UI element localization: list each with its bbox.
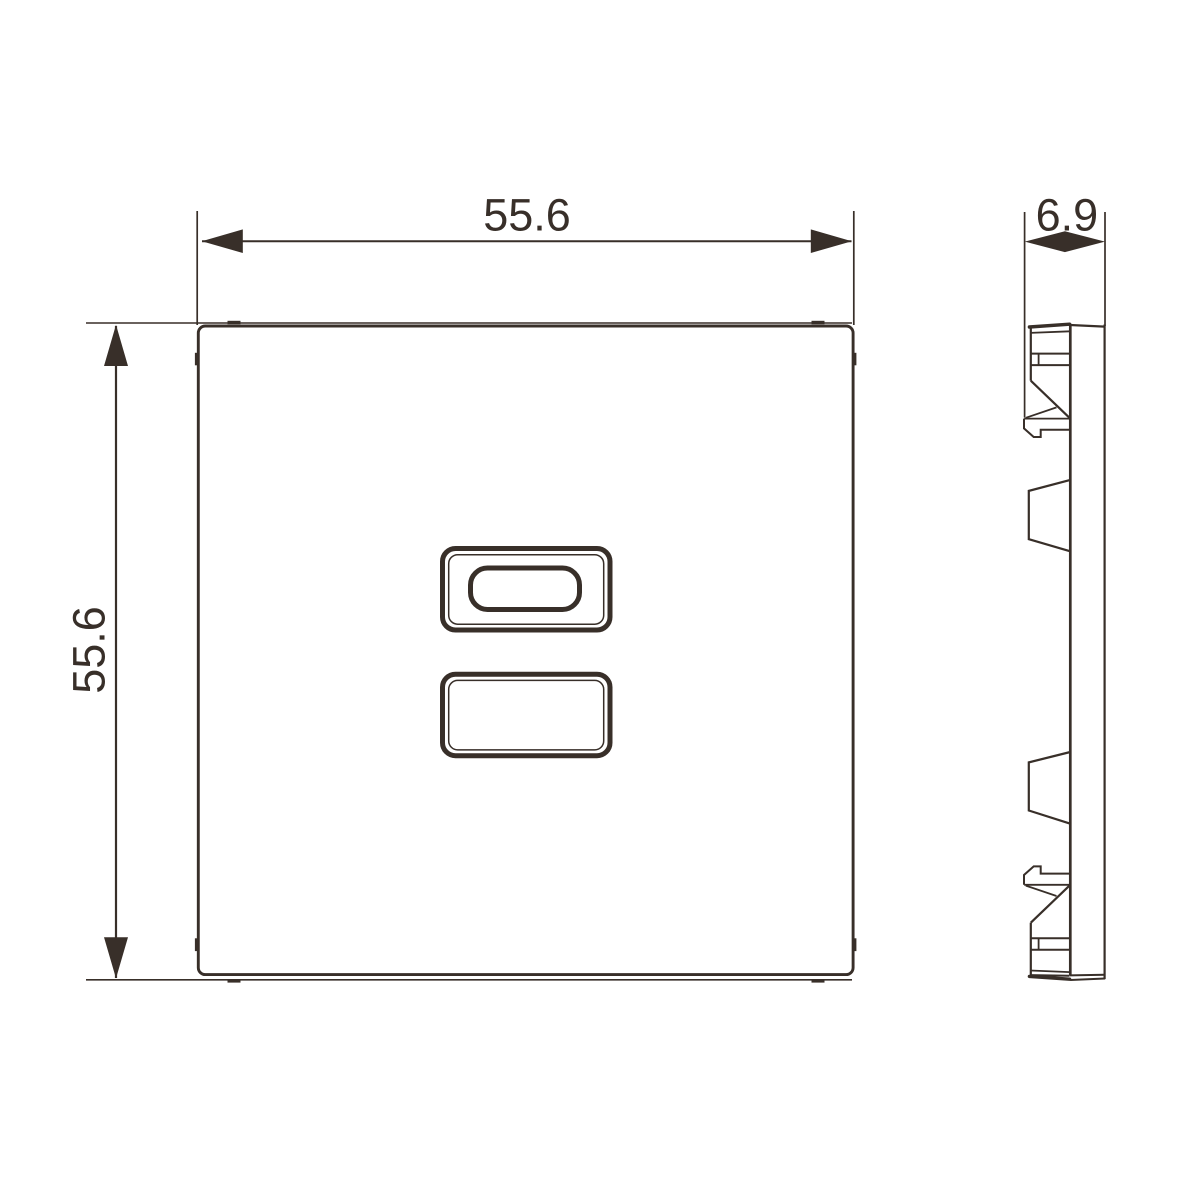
svg-text:6.9: 6.9 [1036, 190, 1099, 241]
svg-text:55.6: 55.6 [483, 190, 571, 241]
svg-text:55.6: 55.6 [64, 606, 115, 694]
